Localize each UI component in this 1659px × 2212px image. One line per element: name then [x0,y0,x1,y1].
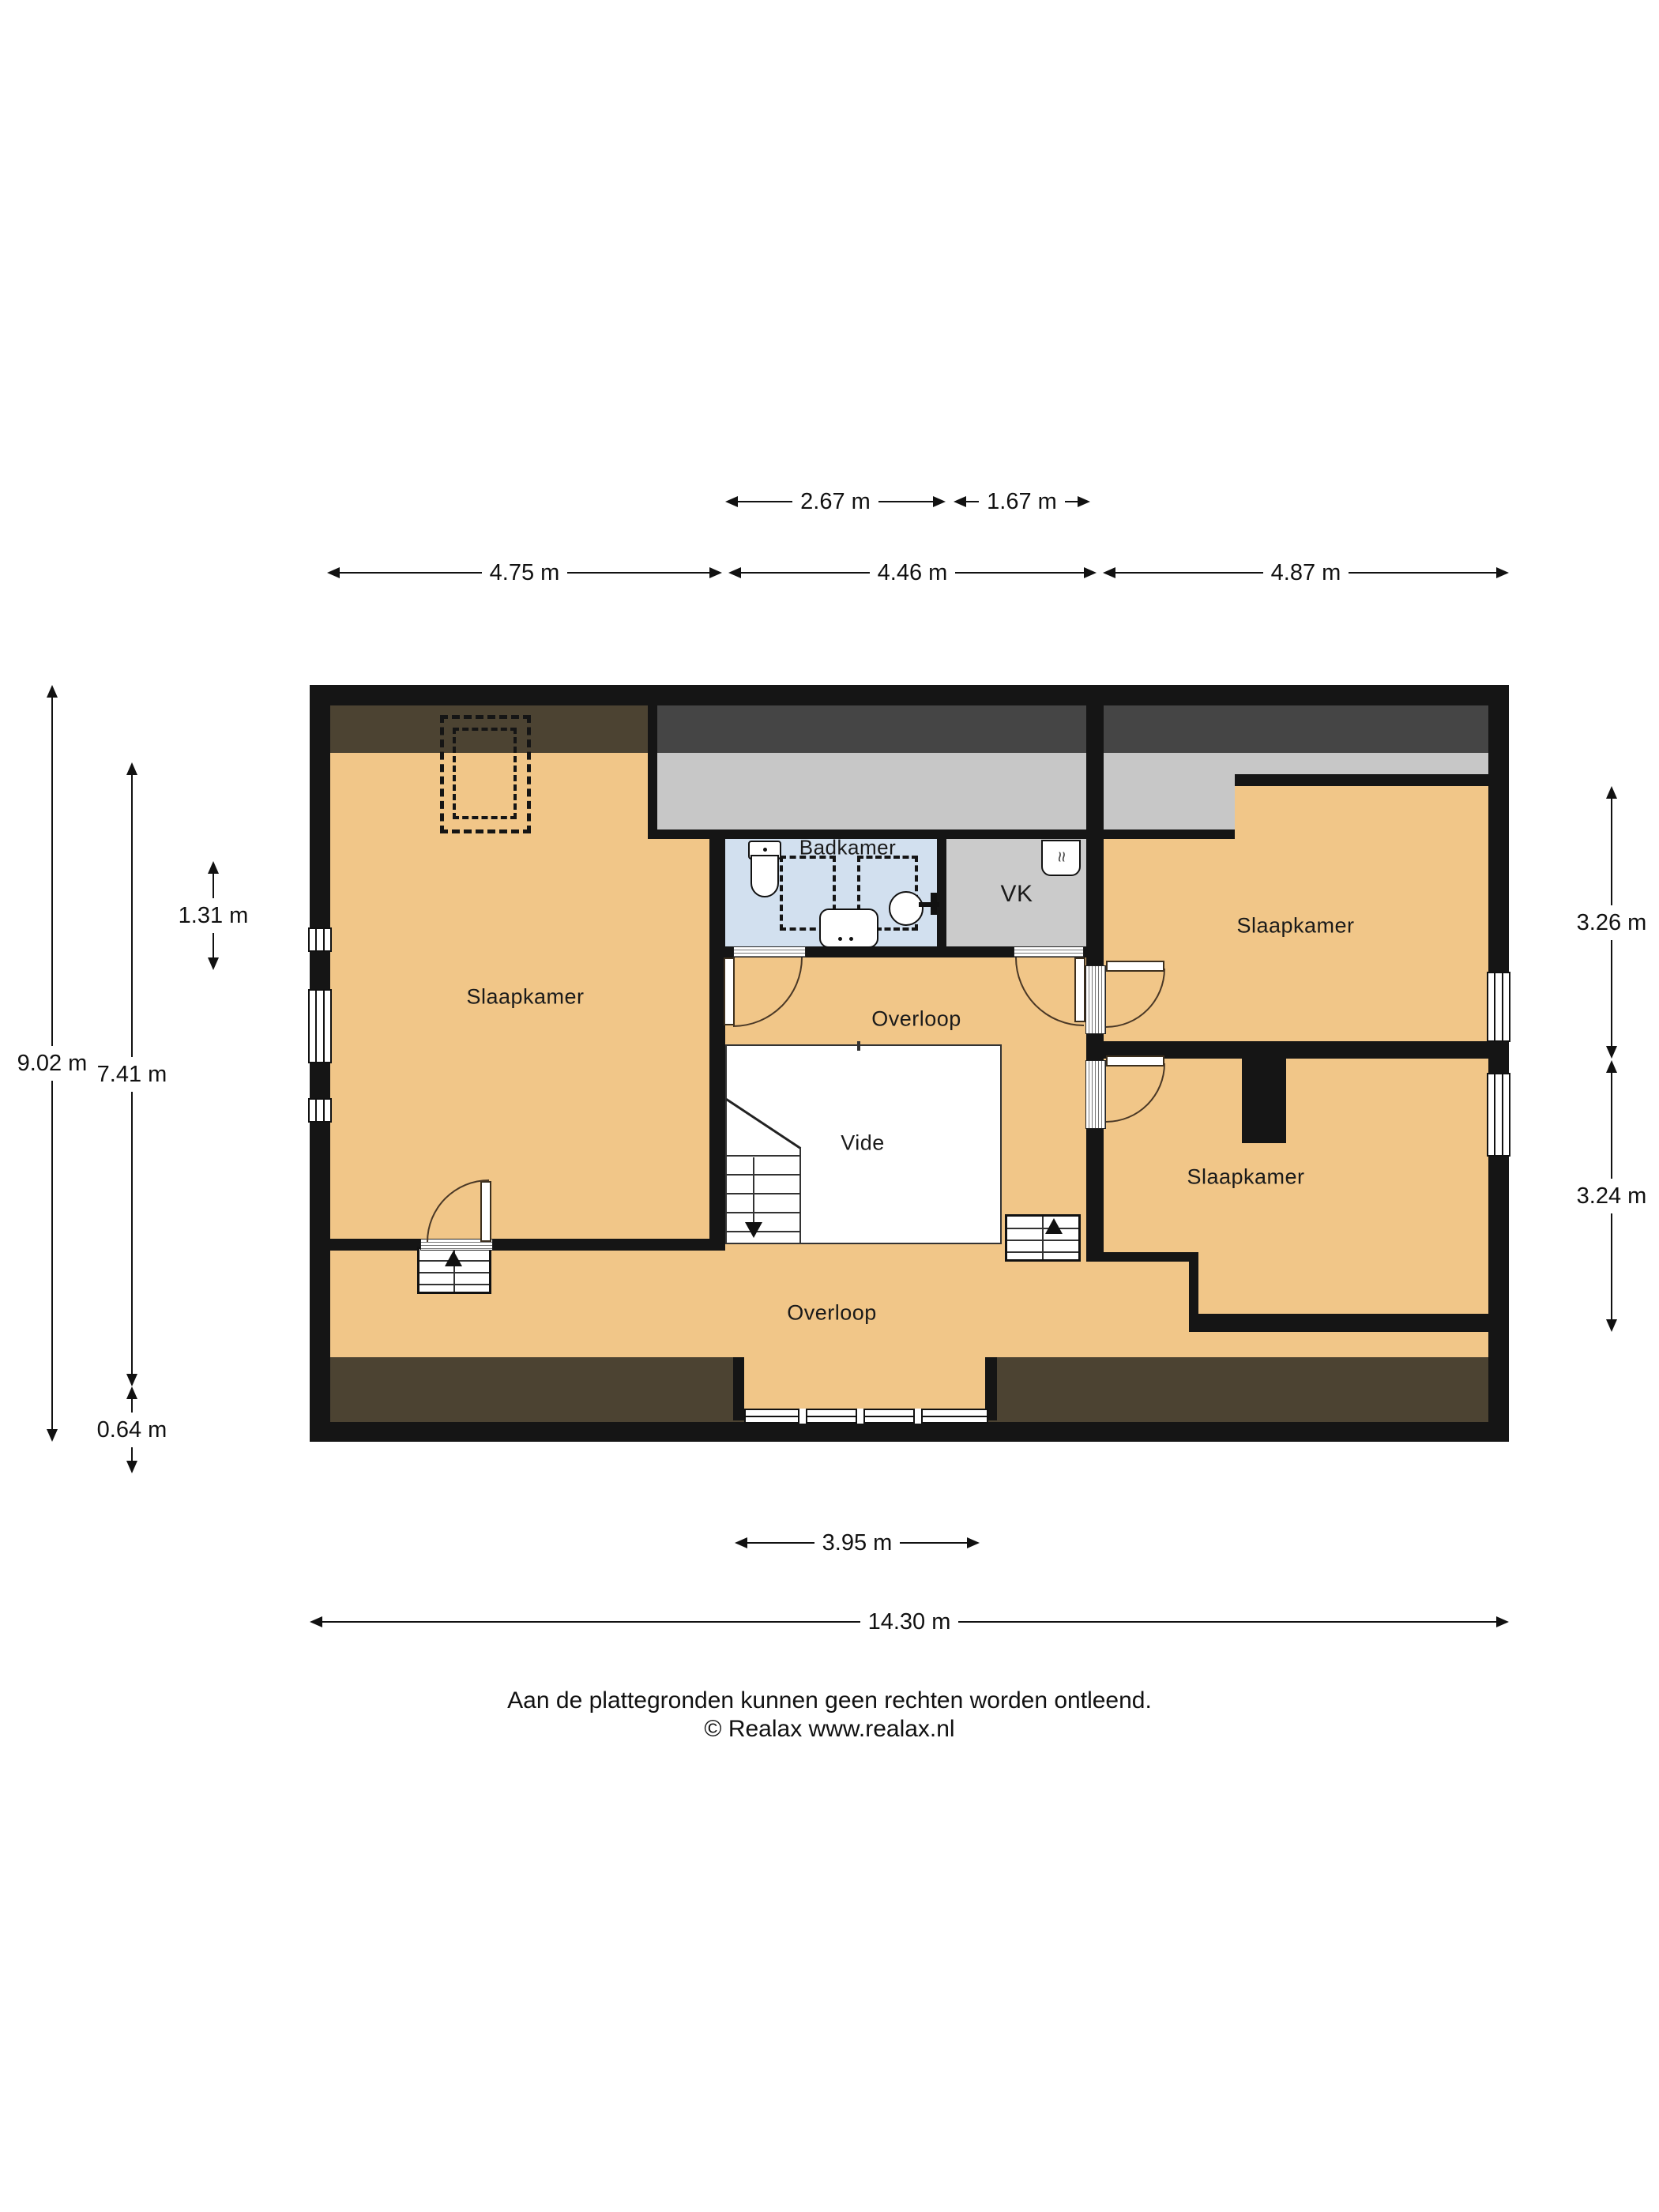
wall-bedroom-right-top-b [1104,829,1235,839]
arrow-left-icon [327,567,340,578]
roof-band-top-middle-dark [657,705,1086,753]
dimension-left-902: 9.02 m [40,685,64,1442]
wall-left-bedroom-east [709,829,725,1251]
pillar [1242,1059,1286,1143]
floorplan-page: ≈ Slaapkamer Badkamer VK Slaapkamer Over… [0,0,1659,2212]
arrow-up-icon [1606,1060,1617,1073]
arrow-right-icon [1078,496,1090,507]
arrow-down-icon [1606,1046,1617,1059]
roof-band-top-right-light [1104,753,1488,774]
void-top-tick [857,1041,860,1051]
window-right-bottom [1487,1073,1510,1157]
stair-tread [727,1174,799,1176]
arrow-up-icon [47,685,58,698]
arrow-up-icon [208,861,219,874]
dimension-top-475: 4.75 m [327,561,722,585]
disclaimer-text: Aan de plattegronden kunnen geen rechten… [0,1687,1659,1714]
window-right-top [1487,972,1510,1042]
dimension-right-324: 3.24 m [1600,1060,1623,1332]
dimension-bottom-395: 3.95 m [735,1531,980,1555]
stairs-down-edge [799,1147,801,1243]
stairs-up-arrow-icon [1045,1218,1063,1234]
toilet-button [763,848,767,852]
wall-bedroom-right-bottom-c [1189,1314,1488,1332]
dormer-jamb-left [733,1357,744,1420]
wall-bedroom-right-bottom-b [1189,1252,1198,1323]
room-label-bedroom-right-bottom: Slaapkamer [1187,1165,1304,1190]
window-mullion [315,1100,325,1121]
roof-band-top-right-dark [1104,705,1488,753]
arrow-down-icon [1606,1319,1617,1332]
wall-bedroom-left-south [330,1239,709,1251]
dimension-top-167: 1.67 m [954,490,1090,513]
dormer-window [744,1409,988,1424]
arrow-left-icon [310,1616,322,1627]
sink-icon [819,908,878,948]
room-label-landing-mid: Overloop [871,1007,961,1032]
dimension-top-487: 4.87 m [1103,561,1509,585]
faucet-handle [838,937,842,941]
stair-center-line [1042,1217,1044,1259]
arrow-left-icon [1103,567,1115,578]
dimension-left-064: 0.64 m [120,1386,144,1473]
window-left-small-top [308,927,332,952]
arrow-down-icon [126,1374,137,1386]
roof-window-dashed-inner [453,728,517,819]
stairs-down-arrow-icon [745,1222,762,1238]
door-sill-closet [1014,946,1084,957]
arrow-down-icon [47,1429,58,1442]
arrow-right-icon [709,567,722,578]
wall-band-left [648,705,657,839]
arrow-right-icon [1496,1616,1509,1627]
window-glass-line [746,1416,987,1417]
window-left-small-bottom [308,1098,332,1123]
window-mullion [913,1409,923,1424]
roof-band-top-right-light-step [1104,774,1235,829]
dimension-left-131: 1.31 m [201,861,225,970]
window-mullion [1494,973,1503,1040]
arrow-left-icon [735,1537,747,1548]
door-sill-bathroom [733,946,806,957]
stair-tread [727,1155,799,1157]
toilet-bowl-icon [750,855,779,897]
arrow-right-icon [967,1537,980,1548]
faucet-icon-handle [931,893,937,915]
dimension-top-267: 2.67 m [725,490,946,513]
window-left-tall [308,989,332,1063]
dimension-top-446: 4.46 m [728,561,1097,585]
basin-icon [889,891,924,926]
window-mullion [1494,1074,1503,1155]
arrow-up-icon [1606,786,1617,799]
wall-bedroom-right-bottom-a [1086,1252,1198,1262]
room-label-landing-bottom: Overloop [787,1301,877,1326]
room-label-bedroom-right-top: Slaapkamer [1236,914,1354,939]
dimension-bottom-1430: 14.30 m [310,1610,1509,1634]
arrow-down-icon [208,957,219,970]
stairs-down-stem [753,1157,754,1222]
ventilation-glyph: ≈ [1050,852,1072,862]
wall-bedroom-right-top-a [1235,774,1488,786]
stairs-up-right [1005,1214,1081,1262]
door-sill-bedroom-right-top [1085,965,1106,1034]
stair-tread [727,1231,799,1232]
door-sill-bedroom-right-bottom [1085,1060,1106,1129]
room-label-bathroom: Badkamer [799,836,897,860]
wall-bathroom-closet [937,839,946,946]
stair-tread [727,1212,799,1213]
arrow-down-icon [126,1461,137,1473]
window-mullion [315,991,325,1062]
arrow-left-icon [954,496,966,507]
arrow-right-icon [1496,567,1509,578]
dormer-recess [744,1357,985,1409]
window-mullion [315,929,325,950]
faucet-handle [849,937,853,941]
roof-band-top-middle-light [657,753,1086,829]
room-label-bedroom-left: Slaapkamer [466,985,584,1010]
ventilation-unit-icon: ≈ [1041,840,1081,876]
window-mullion [798,1409,807,1424]
arrow-left-icon [728,567,741,578]
arrow-left-icon [725,496,738,507]
stairs-up-arrow-icon [445,1251,462,1266]
arrow-right-icon [1084,567,1097,578]
dimension-right-326: 3.26 m [1600,786,1623,1059]
arrow-up-icon [126,1386,137,1399]
copyright-text: © Realax www.realax.nl [0,1716,1659,1743]
stairs-up-left [417,1247,491,1294]
window-mullion [856,1409,865,1424]
arrow-up-icon [126,762,137,775]
arrow-right-icon [933,496,946,507]
stair-tread [727,1193,799,1194]
dimension-left-741: 7.41 m [120,762,144,1386]
room-label-closet: VK [1000,881,1033,908]
room-label-void: Vide [841,1131,885,1156]
